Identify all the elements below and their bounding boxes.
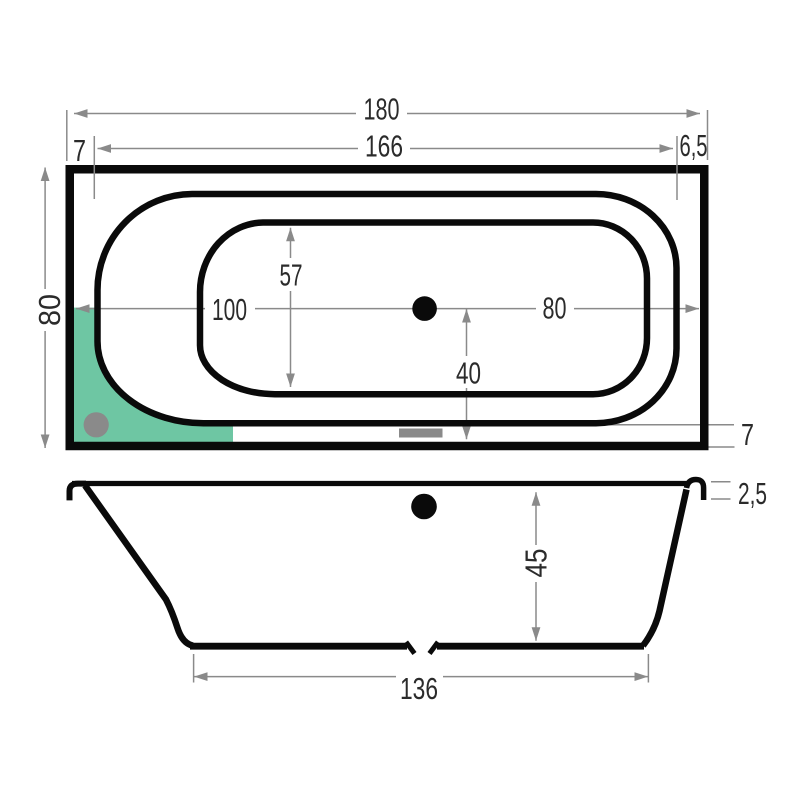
svg-text:40: 40	[456, 357, 481, 391]
svg-text:6,5: 6,5	[680, 129, 708, 163]
svg-text:180: 180	[364, 93, 400, 127]
svg-text:100: 100	[212, 293, 247, 327]
svg-text:2,5: 2,5	[738, 477, 767, 511]
svg-text:57: 57	[280, 259, 303, 293]
svg-text:136: 136	[400, 672, 438, 706]
svg-text:80: 80	[543, 292, 567, 326]
svg-text:166: 166	[365, 130, 403, 164]
svg-text:7: 7	[741, 418, 754, 452]
svg-text:80: 80	[33, 294, 67, 326]
svg-text:7: 7	[73, 134, 86, 168]
svg-text:45: 45	[520, 549, 554, 578]
